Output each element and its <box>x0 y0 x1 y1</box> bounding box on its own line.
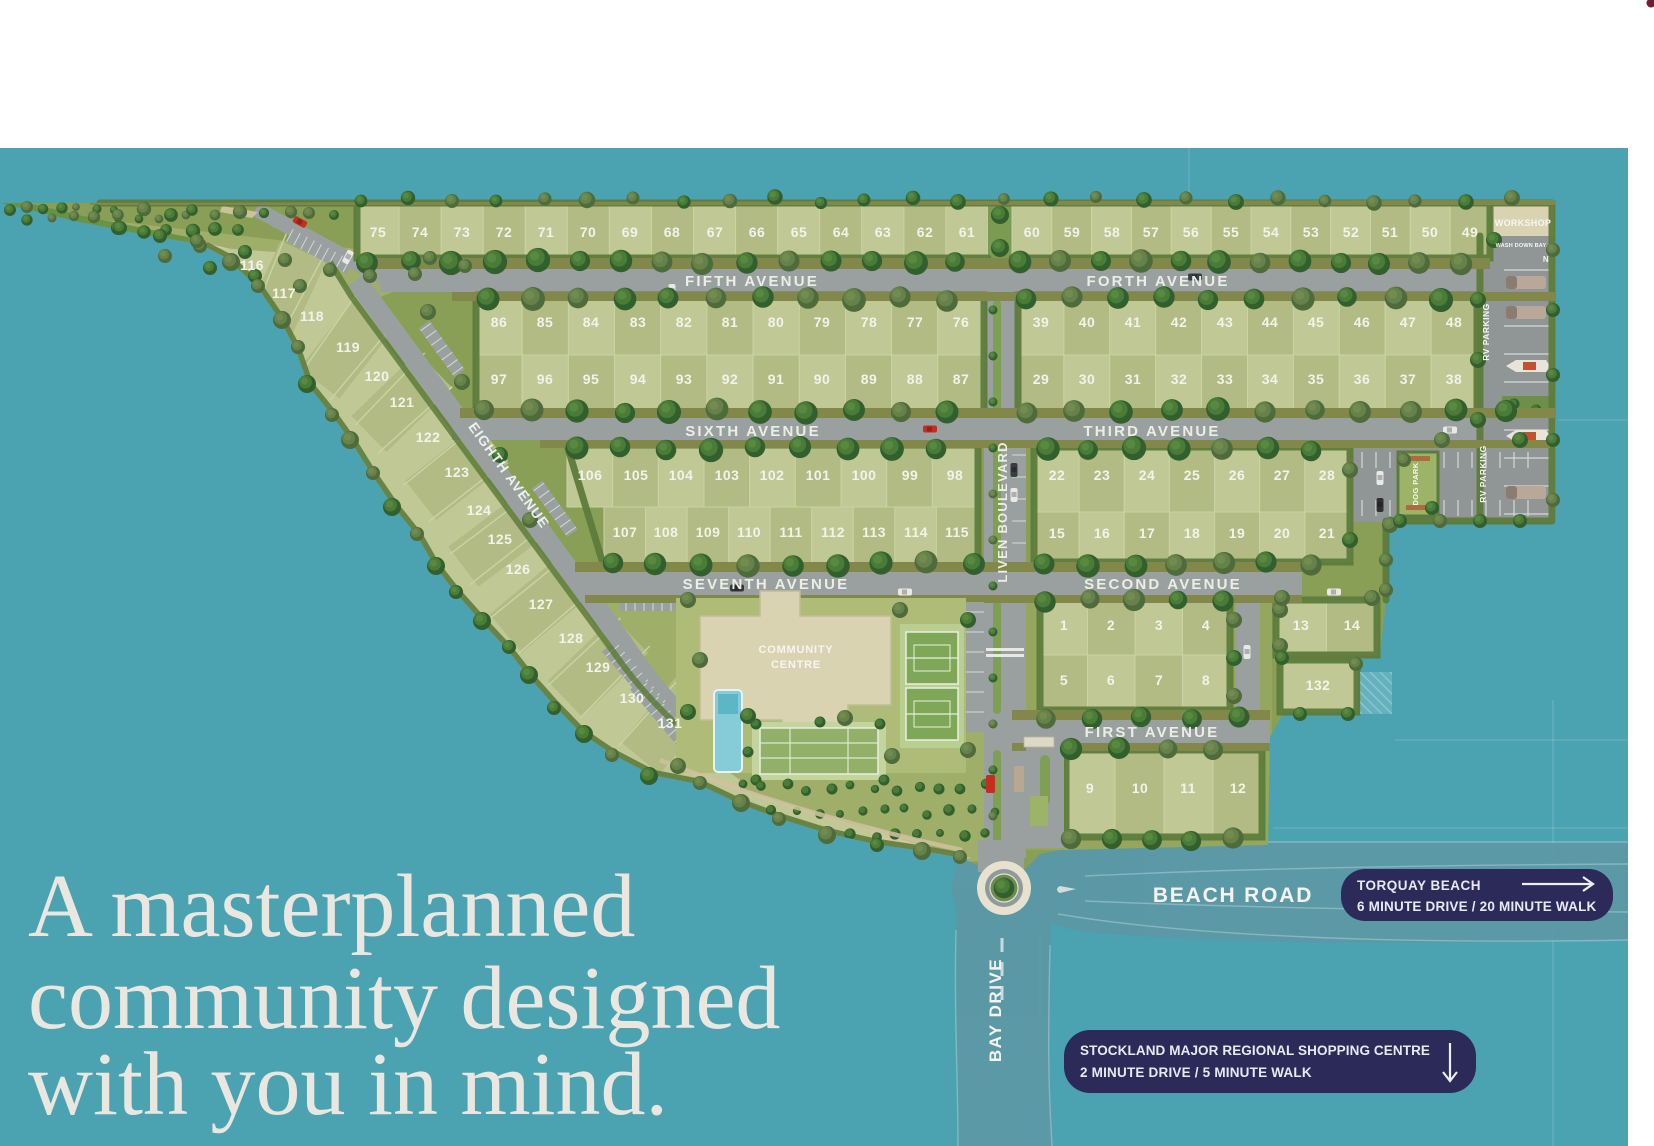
svg-text:with you in mind.: with you in mind. <box>28 1035 668 1134</box>
svg-text:23: 23 <box>1094 467 1111 483</box>
svg-text:105: 105 <box>624 467 649 483</box>
svg-text:61: 61 <box>959 224 976 240</box>
svg-text:WORKSHOP: WORKSHOP <box>1495 218 1551 228</box>
svg-text:53: 53 <box>1303 224 1320 240</box>
svg-text:122: 122 <box>416 429 441 445</box>
svg-text:113: 113 <box>862 524 886 540</box>
svg-text:32: 32 <box>1171 371 1188 387</box>
svg-text:40: 40 <box>1079 314 1096 330</box>
svg-text:community designed: community designed <box>28 949 780 1048</box>
svg-text:6: 6 <box>1107 672 1115 688</box>
svg-text:72: 72 <box>496 224 513 240</box>
svg-text:112: 112 <box>821 524 845 540</box>
svg-text:15: 15 <box>1049 525 1066 541</box>
svg-text:5: 5 <box>1060 672 1068 688</box>
svg-text:41: 41 <box>1125 314 1142 330</box>
svg-text:31: 31 <box>1125 371 1142 387</box>
svg-text:88: 88 <box>907 371 924 387</box>
svg-text:11: 11 <box>1180 780 1196 796</box>
svg-text:107: 107 <box>613 524 638 540</box>
svg-text:48: 48 <box>1446 314 1463 330</box>
svg-text:101: 101 <box>806 467 831 483</box>
svg-text:18: 18 <box>1184 525 1201 541</box>
svg-text:68: 68 <box>664 224 681 240</box>
svg-text:21: 21 <box>1319 525 1336 541</box>
svg-text:71: 71 <box>538 224 555 240</box>
svg-text:70: 70 <box>580 224 597 240</box>
svg-text:17: 17 <box>1139 525 1156 541</box>
svg-text:123: 123 <box>445 464 470 480</box>
svg-text:103: 103 <box>715 467 740 483</box>
svg-text:63: 63 <box>875 224 892 240</box>
svg-text:114: 114 <box>904 524 928 540</box>
svg-text:SECOND AVENUE: SECOND AVENUE <box>1084 576 1242 593</box>
svg-text:64: 64 <box>833 224 850 240</box>
svg-text:131: 131 <box>658 715 683 731</box>
svg-text:132: 132 <box>1306 677 1331 693</box>
svg-text:90: 90 <box>814 371 831 387</box>
svg-text:51: 51 <box>1382 224 1399 240</box>
svg-text:84: 84 <box>583 314 600 330</box>
svg-text:125: 125 <box>488 531 513 547</box>
svg-text:119: 119 <box>336 339 360 355</box>
svg-text:SIXTH AVENUE: SIXTH AVENUE <box>685 423 821 440</box>
svg-text:127: 127 <box>529 596 554 612</box>
svg-text:108: 108 <box>654 524 679 540</box>
svg-text:50: 50 <box>1422 224 1439 240</box>
svg-text:39: 39 <box>1033 314 1050 330</box>
svg-text:9: 9 <box>1086 780 1094 796</box>
svg-text:3: 3 <box>1155 617 1163 633</box>
svg-text:THIRD AVENUE: THIRD AVENUE <box>1083 423 1220 440</box>
svg-text:BAY DRIVE: BAY DRIVE <box>986 958 1005 1062</box>
svg-text:TORQUAY BEACH: TORQUAY BEACH <box>1357 878 1481 893</box>
svg-text:104: 104 <box>669 467 694 483</box>
svg-text:99: 99 <box>902 467 919 483</box>
svg-text:87: 87 <box>953 371 970 387</box>
svg-text:RV PARKING: RV PARKING <box>1481 303 1491 361</box>
svg-text:77: 77 <box>907 314 924 330</box>
svg-text:20: 20 <box>1274 525 1291 541</box>
svg-text:57: 57 <box>1143 224 1160 240</box>
svg-text:8: 8 <box>1202 672 1210 688</box>
svg-text:59: 59 <box>1064 224 1081 240</box>
svg-text:96: 96 <box>537 371 554 387</box>
svg-text:110: 110 <box>737 524 761 540</box>
svg-text:52: 52 <box>1343 224 1360 240</box>
svg-text:130: 130 <box>620 690 645 706</box>
svg-text:38: 38 <box>1446 371 1463 387</box>
svg-text:56: 56 <box>1183 224 1200 240</box>
svg-text:47: 47 <box>1400 314 1417 330</box>
svg-text:62: 62 <box>917 224 934 240</box>
svg-text:COMMUNITY: COMMUNITY <box>758 644 833 656</box>
svg-text:N: N <box>1543 255 1549 264</box>
svg-text:FORTH AVENUE: FORTH AVENUE <box>1086 273 1229 290</box>
svg-text:46: 46 <box>1354 314 1371 330</box>
svg-text:65: 65 <box>791 224 808 240</box>
svg-text:109: 109 <box>696 524 721 540</box>
svg-text:79: 79 <box>814 314 831 330</box>
svg-text:FIFTH AVENUE: FIFTH AVENUE <box>685 273 819 290</box>
svg-text:93: 93 <box>676 371 693 387</box>
svg-text:115: 115 <box>945 524 969 540</box>
svg-text:120: 120 <box>365 368 390 384</box>
svg-text:83: 83 <box>630 314 647 330</box>
svg-text:49: 49 <box>1462 224 1479 240</box>
svg-text:86: 86 <box>491 314 508 330</box>
svg-text:76: 76 <box>953 314 970 330</box>
svg-text:35: 35 <box>1308 371 1325 387</box>
svg-text:126: 126 <box>506 561 531 577</box>
svg-text:89: 89 <box>861 371 878 387</box>
svg-text:73: 73 <box>454 224 471 240</box>
svg-text:60: 60 <box>1024 224 1041 240</box>
svg-text:SEVENTH AVENUE: SEVENTH AVENUE <box>683 576 850 593</box>
svg-text:97: 97 <box>491 371 508 387</box>
svg-text:44: 44 <box>1262 314 1279 330</box>
svg-text:29: 29 <box>1033 371 1050 387</box>
svg-text:74: 74 <box>412 224 429 240</box>
svg-text:30: 30 <box>1079 371 1096 387</box>
svg-text:69: 69 <box>622 224 639 240</box>
svg-text:43: 43 <box>1217 314 1234 330</box>
svg-text:66: 66 <box>749 224 766 240</box>
svg-text:121: 121 <box>390 394 415 410</box>
svg-text:128: 128 <box>559 630 584 646</box>
svg-text:24: 24 <box>1139 467 1156 483</box>
svg-text:A masterplanned: A masterplanned <box>28 857 635 956</box>
svg-text:98: 98 <box>947 467 964 483</box>
svg-text:55: 55 <box>1223 224 1240 240</box>
svg-text:6 MINUTE DRIVE / 20 MINUTE WAL: 6 MINUTE DRIVE / 20 MINUTE WALK <box>1357 899 1597 914</box>
svg-text:117: 117 <box>272 285 296 301</box>
svg-text:75: 75 <box>370 224 387 240</box>
svg-text:DOG PARK: DOG PARK <box>1411 462 1420 505</box>
svg-text:80: 80 <box>768 314 785 330</box>
svg-text:81: 81 <box>722 314 739 330</box>
svg-text:7: 7 <box>1155 672 1163 688</box>
svg-text:78: 78 <box>861 314 878 330</box>
svg-text:34: 34 <box>1262 371 1279 387</box>
svg-text:27: 27 <box>1274 467 1291 483</box>
svg-text:45: 45 <box>1308 314 1325 330</box>
svg-text:124: 124 <box>467 502 492 518</box>
svg-text:26: 26 <box>1229 467 1246 483</box>
svg-text:CENTRE: CENTRE <box>771 659 821 671</box>
svg-text:106: 106 <box>578 467 603 483</box>
svg-text:85: 85 <box>537 314 554 330</box>
svg-text:42: 42 <box>1171 314 1188 330</box>
svg-text:RV PARKING: RV PARKING <box>1478 445 1488 503</box>
svg-text:82: 82 <box>676 314 693 330</box>
svg-text:LIVEN BOULEVARD: LIVEN BOULEVARD <box>995 441 1010 582</box>
svg-text:37: 37 <box>1400 371 1417 387</box>
svg-text:28: 28 <box>1319 467 1336 483</box>
svg-text:16: 16 <box>1094 525 1111 541</box>
svg-text:116: 116 <box>240 257 264 273</box>
svg-text:94: 94 <box>630 371 647 387</box>
svg-text:10: 10 <box>1132 780 1149 796</box>
svg-text:2: 2 <box>1107 617 1115 633</box>
svg-text:67: 67 <box>707 224 724 240</box>
svg-text:36: 36 <box>1354 371 1371 387</box>
svg-text:14: 14 <box>1344 617 1361 633</box>
svg-text:4: 4 <box>1202 617 1210 633</box>
svg-text:19: 19 <box>1229 525 1246 541</box>
svg-text:BEACH ROAD: BEACH ROAD <box>1153 884 1313 907</box>
svg-text:129: 129 <box>586 659 611 675</box>
svg-text:1: 1 <box>1060 617 1068 633</box>
svg-text:118: 118 <box>300 308 324 324</box>
svg-text:111: 111 <box>779 524 802 540</box>
svg-text:STOCKLAND MAJOR REGIONAL SHOPP: STOCKLAND MAJOR REGIONAL SHOPPING CENTRE <box>1080 1043 1430 1058</box>
svg-text:100: 100 <box>852 467 877 483</box>
svg-text:58: 58 <box>1104 224 1121 240</box>
svg-text:2 MINUTE DRIVE / 5 MINUTE WALK: 2 MINUTE DRIVE / 5 MINUTE WALK <box>1080 1065 1312 1080</box>
svg-text:22: 22 <box>1049 467 1066 483</box>
svg-text:FIRST AVENUE: FIRST AVENUE <box>1085 724 1220 741</box>
svg-text:WASH DOWN BAY: WASH DOWN BAY <box>1496 243 1547 249</box>
svg-text:25: 25 <box>1184 467 1201 483</box>
svg-text:12: 12 <box>1230 780 1247 796</box>
svg-text:92: 92 <box>722 371 739 387</box>
svg-text:102: 102 <box>760 467 785 483</box>
svg-text:54: 54 <box>1263 224 1280 240</box>
svg-text:13: 13 <box>1293 617 1310 633</box>
svg-text:33: 33 <box>1217 371 1234 387</box>
svg-text:95: 95 <box>583 371 600 387</box>
svg-text:91: 91 <box>768 371 785 387</box>
